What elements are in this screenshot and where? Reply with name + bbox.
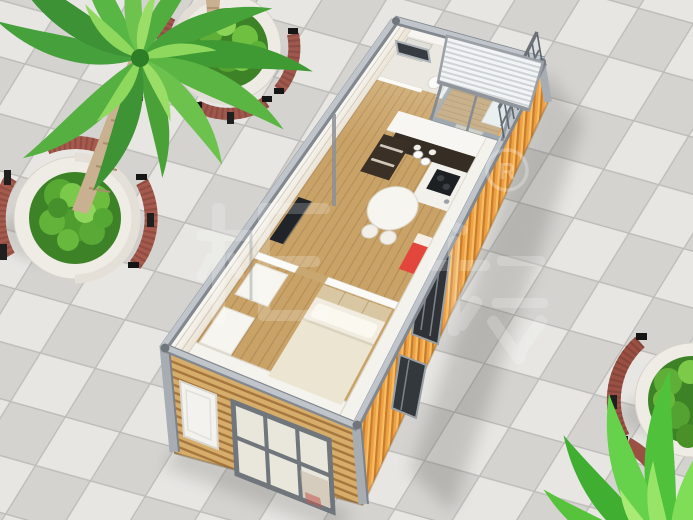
planter-shrub bbox=[29, 172, 121, 264]
render-scene: R 柜族 ® bbox=[0, 0, 693, 520]
